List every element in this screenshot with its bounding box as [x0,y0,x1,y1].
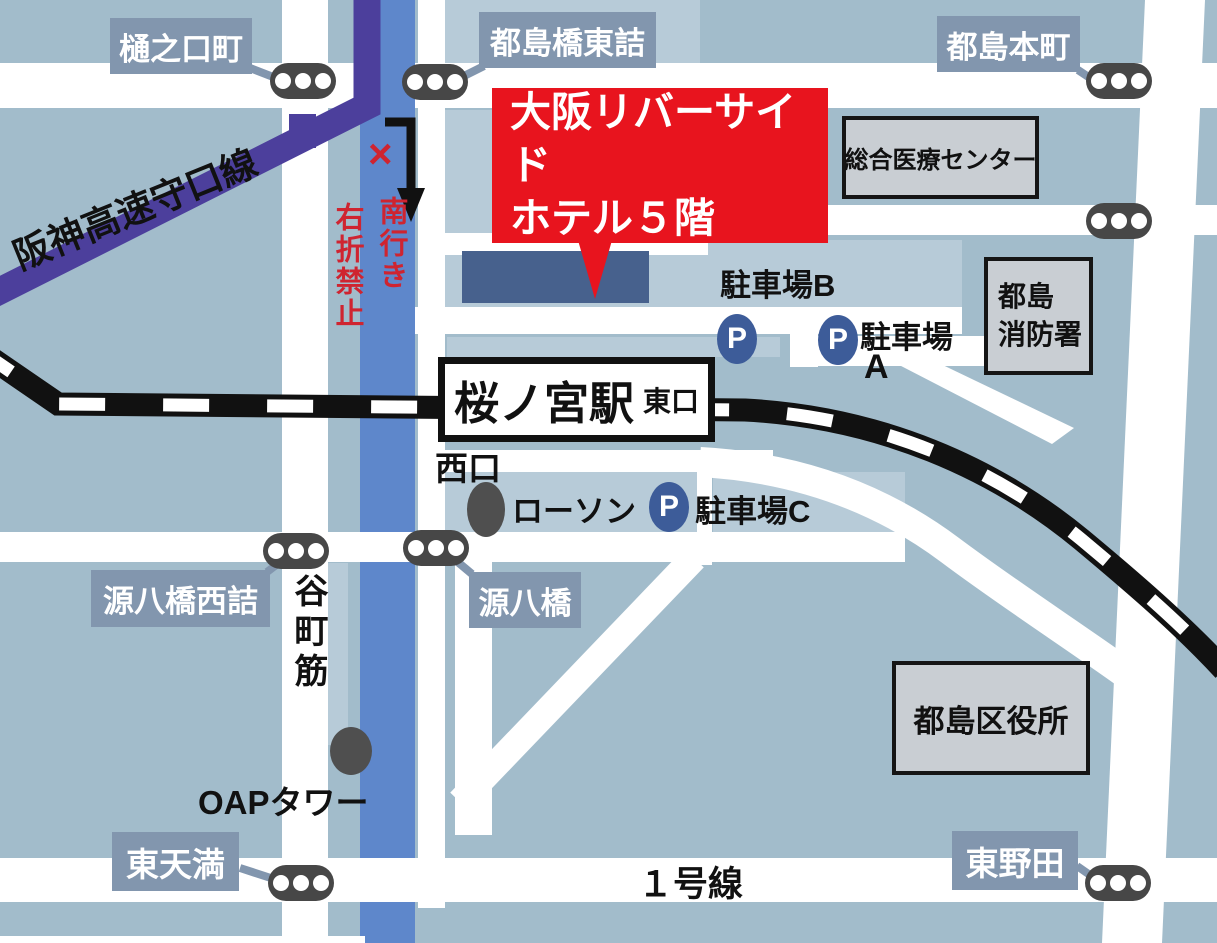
traffic-light-icon [1085,865,1151,901]
building-ward-office: 都島区役所 [892,661,1090,775]
traffic-light-icon [403,530,469,566]
area-label-text: 源八橋 [479,578,572,623]
building-label: 消防署 [998,316,1082,354]
area-label-text: 源八橋西詰 [103,576,258,621]
no-right-turn-label: 右折禁止 [326,202,368,330]
traffic-light-icon [402,64,468,100]
route1-label: １号線 [638,856,743,907]
building-label: 都島区役所 [914,696,1069,741]
hotel-building [462,251,649,303]
oap-tower-dot-icon [330,727,372,775]
tanimachi-suji-label: 谷町筋 [284,573,333,693]
no-right-turn-mark: × [368,130,393,178]
building-medical-center: 総合医療センター [842,116,1039,199]
lawson-dot-icon [467,482,505,537]
area-label-text: 東天満 [126,838,225,886]
parking-icon: P [649,482,689,532]
oap-tower-label: OAPタワー [198,776,369,824]
building-fire-station: 都島 消防署 [984,257,1093,375]
traffic-light-icon [263,533,329,569]
building-label: 都島 [998,278,1054,316]
area-label-miyakojima-honmachi: 都島本町 [937,16,1080,72]
area-label-text: 都島本町 [947,22,1071,67]
destination-line2: ホテル５階 [510,192,828,245]
area-label-text: 樋之口町 [119,24,243,69]
area-label-text: 東野田 [966,837,1065,885]
expressway-ramp [289,114,316,148]
parking-icon-letter: P [727,322,747,356]
traffic-light-icon [270,63,336,99]
area-label-text: 都島橋東詰 [490,18,645,63]
lawson-label: ローソン [512,486,636,531]
parking-b-label: 駐車場B [720,260,835,305]
access-map: 桜ノ宮駅 東口 総合医療センター 都島 消防署 都島区役所 樋之口町 都島橋東詰… [0,0,1217,943]
area-label-miyakojimabashi-higashizume: 都島橋東詰 [479,12,656,68]
building-label: 総合医療センター [845,140,1037,175]
area-label-genpachibashi-nishizume: 源八橋西詰 [91,570,270,627]
destination-line1: 大阪リバーサイド [510,86,828,193]
parking-icon-letter: P [828,323,848,357]
parking-icon-letter: P [659,490,679,524]
parking-a-letter: A [864,348,889,387]
area-label-genpachibashi: 源八橋 [469,572,581,628]
parking-icon: P [717,314,757,364]
station-box: 桜ノ宮駅 東口 [438,357,715,442]
traffic-light-icon [268,865,334,901]
parking-icon: P [818,315,858,365]
parking-c-label: 駐車場C [695,486,810,531]
southbound-label: 南行き [370,196,412,292]
destination-callout: 大阪リバーサイド ホテル５階 [492,88,828,243]
station-east-exit: 東口 [643,380,699,420]
area-label-higashi-noda: 東野田 [952,831,1078,890]
area-label-hinokuchicho: 樋之口町 [110,18,252,74]
station-west-exit: 西口 [435,442,501,490]
traffic-light-icon [1086,63,1152,99]
traffic-light-icon [1086,203,1152,239]
station-name: 桜ノ宮駅 [454,367,634,432]
area-label-higashi-tenma: 東天満 [112,832,239,891]
